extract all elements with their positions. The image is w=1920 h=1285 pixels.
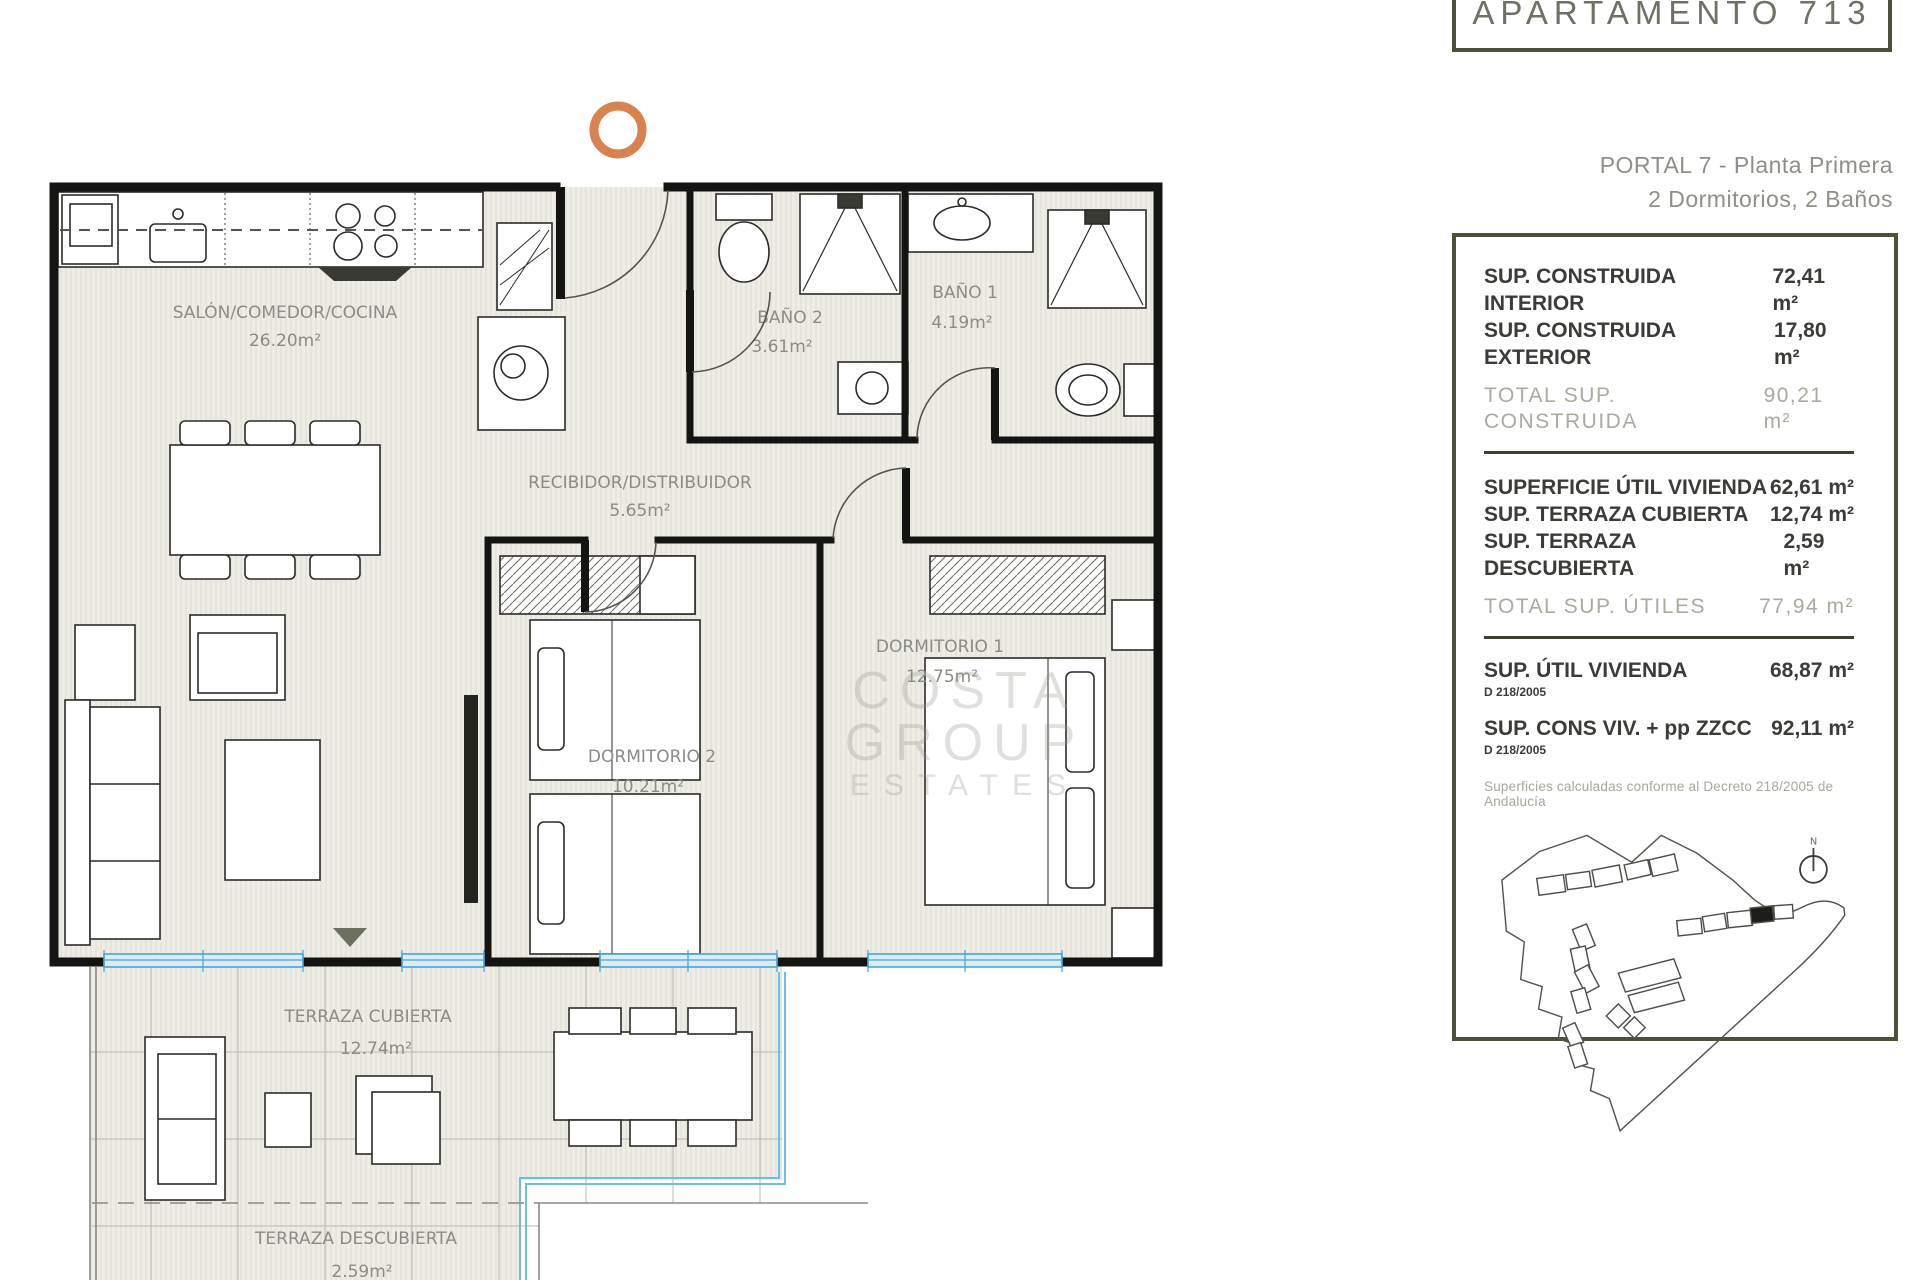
floor-plan-drawing: SALÓN/COMEDOR/COCINA 26.20m² RECIBIDOR/D… [0,80,1180,1280]
row-terraza-cubierta: SUP. TERRAZA CUBIERTA 12,74 m² [1484,501,1854,528]
salon-area: 26.20m² [249,331,321,351]
row-total-utiles: TOTAL SUP. ÚTILES 77,94 m² [1484,594,1854,620]
row-label: SUP. TERRAZA DESCUBIERTA [1484,528,1784,582]
terraza-descubierta-area: 2.59m² [331,1262,392,1280]
building-footprints [1537,854,1794,1068]
row-sublabel: D 218/2005 [1484,685,1687,699]
panel-divider [1484,636,1854,639]
floor-plan: SALÓN/COMEDOR/COCINA 26.20m² RECIBIDOR/D… [0,80,1180,1280]
dorm1-area: 12.75m² [906,667,978,687]
row-value: 92,11 m² [1771,717,1854,757]
dorm2-label: DORMITORIO 2 [588,747,716,767]
dining-table [170,421,380,579]
north-label: N [1810,836,1817,847]
surface-info-panel: SUP. CONSTRUIDA INTERIOR 72,41 m² SUP. C… [1452,233,1898,1041]
portal-line1: PORTAL 7 - Planta Primera [1452,148,1893,182]
total-label: TOTAL SUP. CONSTRUIDA [1484,383,1764,435]
recibidor-label: RECIBIDOR/DISTRIBUIDOR [528,473,752,493]
bano2-area: 3.61m² [751,337,812,357]
row-value: 72,41 m² [1772,263,1854,317]
oven-shade [318,267,412,281]
row-value: 2,59 m² [1784,528,1854,582]
decree-footnote: Superficies calculadas conforme al Decre… [1484,779,1854,809]
terraza-cubierta-label: TERRAZA CUBIERTA [283,1007,452,1027]
row-sublabel: D 218/2005 [1484,743,1752,757]
row-util-vivienda: SUPERFICIE ÚTIL VIVIENDA 62,61 m² [1484,474,1854,501]
portal-line2: 2 Dormitorios, 2 Baños [1452,182,1893,216]
row-value: 68,87 m² [1770,659,1854,699]
row-label: SUP. CONSTRUIDA EXTERIOR [1484,317,1774,371]
total-label: TOTAL SUP. ÚTILES [1484,594,1706,620]
row-label: SUP. ÚTIL VIVIENDA [1484,659,1687,683]
washing-machine [478,317,565,430]
row-value: 12,74 m² [1770,501,1854,528]
dorm2-mirror [464,695,478,903]
terraza-descubierta-label: TERRAZA DESCUBIERTA [254,1229,457,1249]
total-value: 77,94 m² [1759,594,1854,620]
terraza-cubierta-area: 12.74m² [340,1039,412,1059]
row-sup-util-vivienda-decreto: SUP. ÚTIL VIVIENDA D 218/2005 68,87 m² [1484,659,1854,699]
bano1-label: BAÑO 1 [932,281,998,303]
apartment-title: APARTAMENTO 713 [1456,0,1888,32]
row-label: SUPERFICIE ÚTIL VIVIENDA [1484,474,1767,501]
row-construida-interior: SUP. CONSTRUIDA INTERIOR 72,41 m² [1484,263,1854,317]
row-construida-exterior: SUP. CONSTRUIDA EXTERIOR 17,80 m² [1484,317,1854,371]
dorm1-label: DORMITORIO 1 [876,637,1004,657]
row-value: 17,80 m² [1774,317,1854,371]
bano1-area: 4.19m² [931,313,992,333]
row-total-construida: TOTAL SUP. CONSTRUIDA 90,21 m² [1484,383,1854,435]
row-value: 62,61 m² [1770,474,1854,501]
total-value: 90,21 m² [1764,383,1854,435]
panel-divider [1484,451,1854,454]
portal-subtitle: PORTAL 7 - Planta Primera 2 Dormitorios,… [1452,148,1893,216]
site-plan-map: N [1484,823,1860,1153]
recibidor-area: 5.65m² [609,501,670,521]
north-arrow-icon: N [1800,836,1827,882]
row-terraza-descubierta: SUP. TERRAZA DESCUBIERTA 2,59 m² [1484,528,1854,582]
row-label: SUP. TERRAZA CUBIERTA [1484,501,1748,528]
row-label: SUP. CONS VIV. + pp ZZCC [1484,717,1752,741]
row-sup-cons-zzcc: SUP. CONS VIV. + pp ZZCC D 218/2005 92,1… [1484,717,1854,757]
row-label: SUP. CONSTRUIDA INTERIOR [1484,263,1772,317]
pantry-unit [497,223,552,310]
salon-label: SALÓN/COMEDOR/COCINA [173,301,398,323]
logo-ring-icon [594,106,642,154]
dorm2-area: 10.21m² [612,777,684,797]
apartment-title-box: APARTAMENTO 713 [1452,0,1892,52]
